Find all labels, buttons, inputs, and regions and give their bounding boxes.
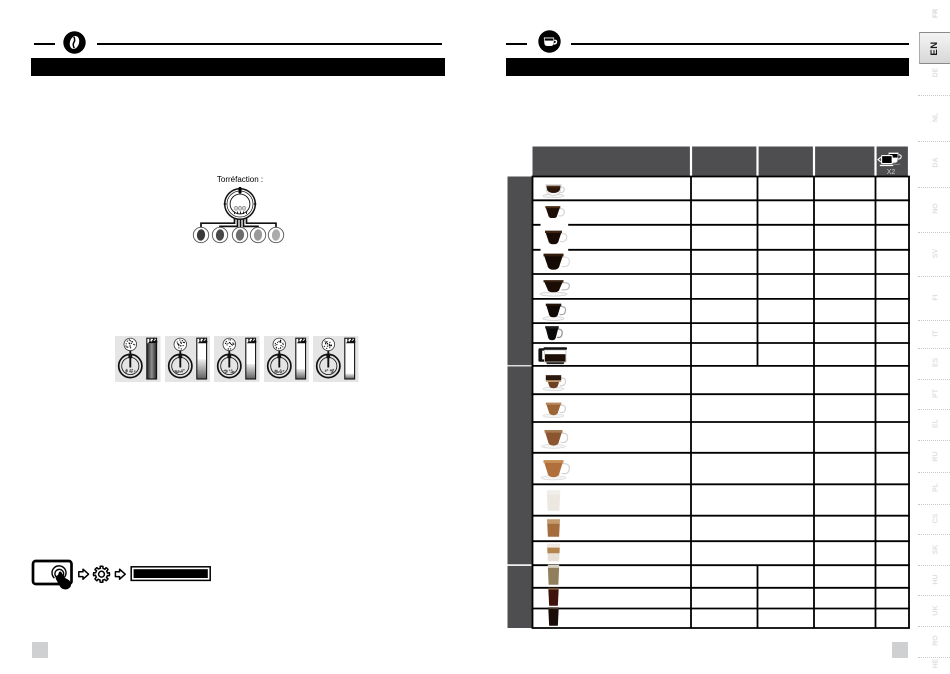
svg-text:X2: X2 [887,169,896,176]
